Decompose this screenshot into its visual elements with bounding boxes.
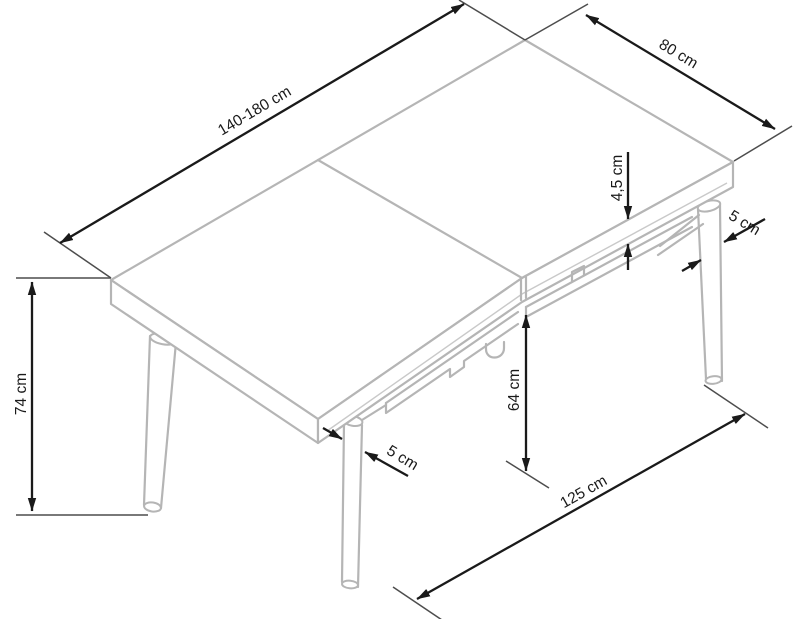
extension-line <box>734 126 792 161</box>
table-leg-left <box>143 331 176 512</box>
dimension-leg-right-label: 5 cm <box>726 207 764 239</box>
dimension-leg-span: 125 cm <box>393 385 768 619</box>
dimension-leg-left-label: 5 cm <box>384 442 422 474</box>
extension-line <box>393 587 442 619</box>
dimension-line <box>417 414 745 599</box>
leg-edge <box>161 342 176 508</box>
leg-foot <box>705 375 722 384</box>
tabletop <box>111 40 733 443</box>
leg-edge <box>698 209 706 379</box>
leg-edge <box>342 423 344 582</box>
leg-foot <box>143 501 161 512</box>
leg-edge <box>144 336 150 505</box>
leg-foot <box>342 580 359 589</box>
extension-line <box>459 0 525 40</box>
dimension-height-label: 74 cm <box>13 373 30 415</box>
table-dimension-drawing: 140-180 cm 80 cm 4,5 cm 5 cm 74 cm <box>0 0 795 619</box>
dimension-clearance-label: 64 cm <box>506 369 523 411</box>
dimension-leg-diameter-right: 5 cm <box>682 207 765 271</box>
table-leg-front <box>342 415 363 589</box>
dimension-thickness-label: 4,5 cm <box>609 155 626 202</box>
leg-edge <box>720 205 722 381</box>
dimension-width-label: 80 cm <box>656 36 701 72</box>
table-illustration <box>111 40 733 589</box>
extension-line <box>704 385 768 428</box>
dimension-clearance: 64 cm <box>506 315 549 488</box>
extension-line-floor <box>506 461 549 488</box>
dimension-arrow <box>682 260 701 271</box>
dimension-drawing-page: 140-180 cm 80 cm 4,5 cm 5 cm 74 cm <box>0 0 795 619</box>
dimension-leg-diameter-left: 5 cm <box>323 428 421 476</box>
leg-edge <box>358 425 362 587</box>
extension-line <box>525 4 588 40</box>
extension-line <box>44 232 111 278</box>
